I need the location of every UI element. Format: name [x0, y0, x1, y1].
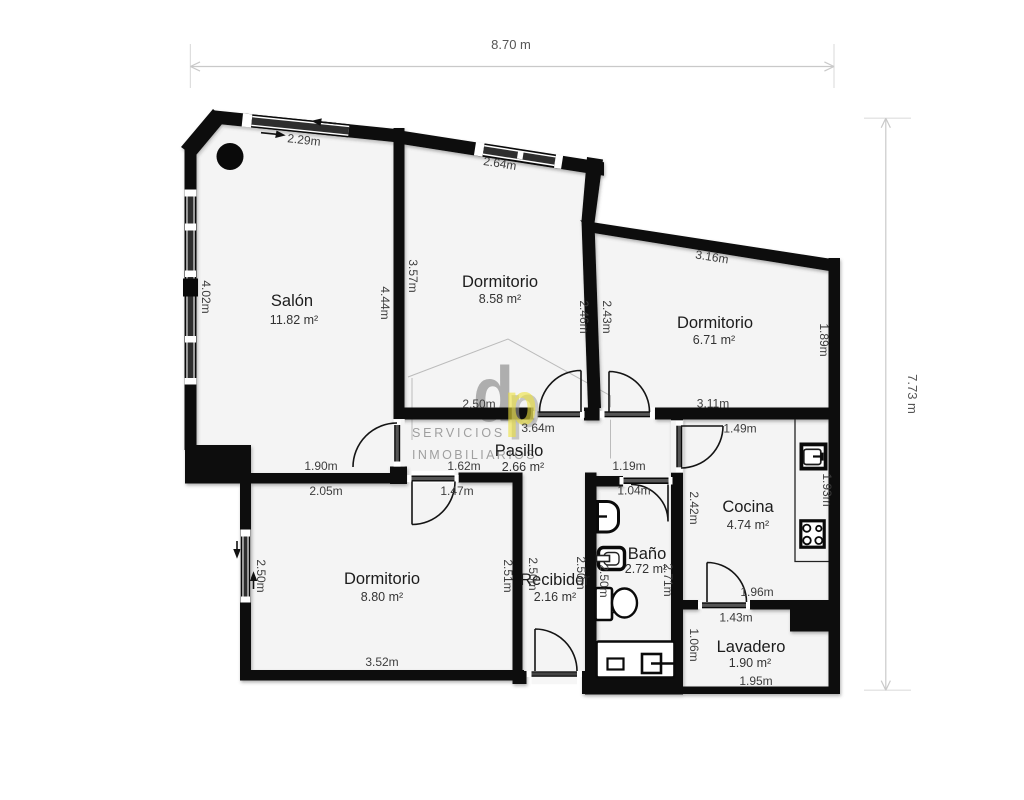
svg-text:2.50m: 2.50m [462, 397, 495, 411]
svg-text:1.90 m²: 1.90 m² [729, 656, 771, 670]
svg-text:1.95m: 1.95m [739, 674, 772, 688]
svg-text:8.70 m: 8.70 m [491, 37, 531, 52]
svg-text:2.50m: 2.50m [597, 564, 611, 597]
svg-text:SERVICIOS: SERVICIOS [412, 426, 505, 440]
svg-text:8.58 m²: 8.58 m² [479, 292, 521, 306]
svg-text:2.16 m²: 2.16 m² [534, 590, 576, 604]
svg-text:Dormitorio: Dormitorio [462, 273, 538, 291]
svg-text:1.47m: 1.47m [440, 484, 473, 498]
svg-text:Dormitorio: Dormitorio [344, 570, 420, 588]
svg-text:2.50m: 2.50m [574, 556, 588, 589]
svg-text:2.50m: 2.50m [254, 559, 268, 592]
svg-text:Salón: Salón [271, 292, 313, 310]
svg-text:1.62m: 1.62m [447, 459, 480, 473]
svg-text:2.51m: 2.51m [501, 559, 515, 592]
svg-text:1.93m: 1.93m [820, 473, 834, 506]
svg-text:1.19m: 1.19m [612, 459, 645, 473]
svg-text:Cocina: Cocina [722, 498, 774, 516]
svg-text:1.43m: 1.43m [719, 611, 752, 625]
svg-text:2.43m: 2.43m [600, 300, 614, 333]
svg-text:2.71m: 2.71m [661, 563, 675, 596]
svg-text:Dormitorio: Dormitorio [677, 314, 753, 332]
svg-text:2.46m: 2.46m [577, 300, 591, 333]
svg-text:1.90m: 1.90m [304, 459, 337, 473]
svg-text:1.96m: 1.96m [740, 585, 773, 599]
svg-text:4.44m: 4.44m [378, 286, 392, 319]
svg-text:Baño: Baño [628, 545, 667, 563]
svg-text:4.74 m²: 4.74 m² [727, 518, 769, 532]
svg-text:7.73 m: 7.73 m [905, 374, 920, 414]
svg-text:2.42m: 2.42m [687, 491, 701, 524]
svg-text:3.11m: 3.11m [697, 397, 729, 411]
svg-text:6.71 m²: 6.71 m² [693, 333, 735, 347]
svg-text:1.04m: 1.04m [617, 484, 650, 498]
svg-text:Pasillo: Pasillo [495, 442, 544, 460]
svg-text:11.82 m²: 11.82 m² [270, 313, 318, 327]
svg-text:2.05m: 2.05m [309, 484, 342, 498]
svg-text:3.57m: 3.57m [406, 259, 420, 292]
svg-text:1.06m: 1.06m [687, 628, 701, 661]
svg-text:4.02m: 4.02m [199, 280, 213, 313]
svg-text:8.80 m²: 8.80 m² [361, 590, 403, 604]
svg-text:2.50m: 2.50m [526, 557, 540, 590]
svg-text:3.52m: 3.52m [365, 655, 398, 669]
svg-text:Lavadero: Lavadero [717, 638, 786, 656]
svg-text:2.72 m²: 2.72 m² [625, 562, 667, 576]
svg-text:3.64m: 3.64m [521, 421, 554, 435]
svg-text:1.49m: 1.49m [723, 422, 756, 436]
svg-text:1.89m: 1.89m [817, 323, 831, 356]
svg-text:2.66 m²: 2.66 m² [502, 460, 544, 474]
